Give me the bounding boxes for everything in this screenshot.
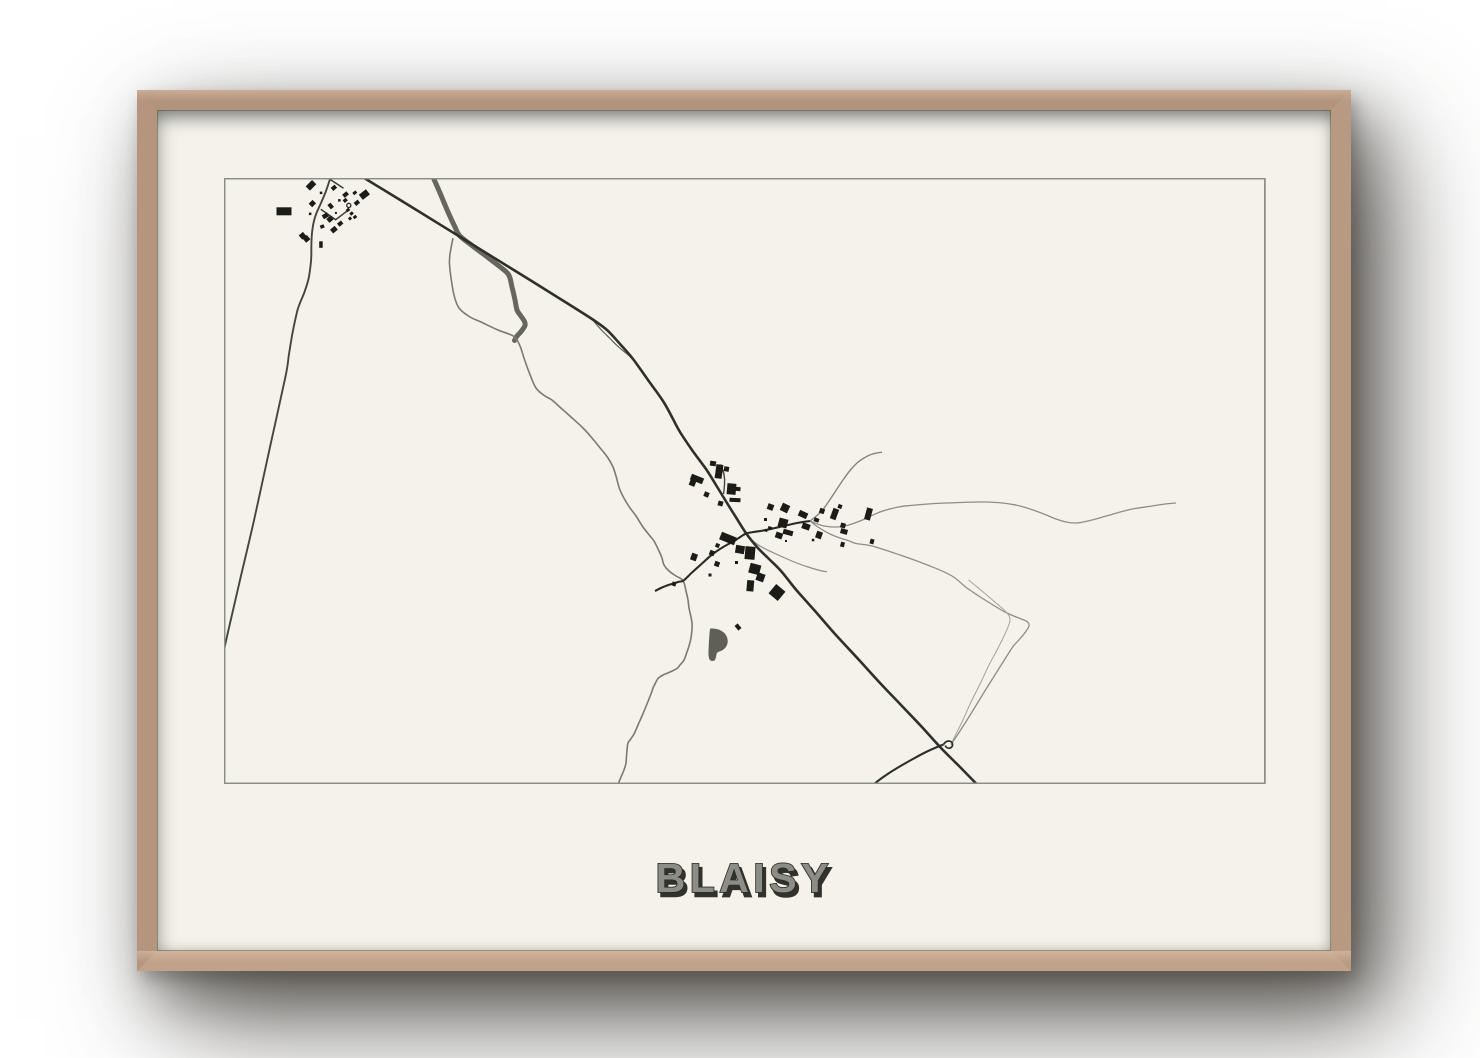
svg-text:BLAISY: BLAISY: [656, 860, 833, 901]
